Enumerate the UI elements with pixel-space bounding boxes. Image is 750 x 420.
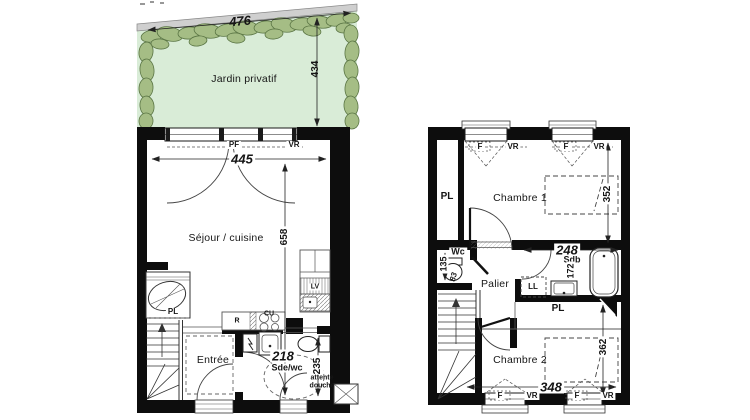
bath-depth-dim: 172	[567, 261, 576, 280]
window-label-f1: F	[476, 143, 485, 151]
dishwasher-label: LV	[309, 284, 321, 291]
bedroom1-depth-dim: 352	[603, 184, 613, 205]
stairs-upper	[438, 290, 480, 399]
closet-label-ground: PL	[166, 308, 180, 316]
bedroom2-width-dim: 348	[538, 381, 564, 394]
shower-note-2: douche	[310, 383, 335, 390]
washer-label: LL	[528, 283, 538, 291]
closet-bottom-label: PL	[552, 304, 565, 314]
bedroom2-depth-dim: 362	[599, 337, 609, 358]
garden-label: Jardin privatif	[211, 74, 276, 85]
wc-depth-dim: 135	[440, 254, 449, 273]
plan-drawing	[0, 0, 750, 420]
duct-triangle	[598, 297, 617, 317]
shutter-label-1: VR	[505, 143, 520, 151]
french-window-label: PF	[227, 141, 241, 149]
shutter-label-4: VR	[600, 392, 615, 400]
wc-label: Wc	[449, 248, 467, 257]
upper-fixtures	[444, 176, 618, 382]
cooktop-label: CU	[264, 311, 274, 318]
garden-depth-dim: 434	[311, 61, 321, 78]
bedroom2-label: Chambre 2	[493, 355, 547, 366]
shower-note-1: attente	[311, 375, 334, 382]
landing-label: Palier	[481, 279, 509, 290]
shutter-label-ground: VR	[286, 141, 301, 149]
shower-depth-dim: 235	[313, 356, 323, 377]
window-label-f4: F	[573, 392, 582, 400]
window-label-f2: F	[562, 143, 571, 151]
entry-label: Entrée	[197, 355, 229, 366]
garden-width-dim: 476	[229, 14, 252, 29]
living-depth-dim: 658	[280, 227, 290, 248]
bedroom1-label: Chambre 1	[493, 193, 547, 204]
shower-width-dim: 218	[270, 350, 296, 363]
shower-room-label: Sde/wc	[269, 364, 304, 373]
shutter-label-2: VR	[591, 143, 606, 151]
window-label-f3: F	[496, 392, 505, 400]
toilet-ground	[298, 337, 318, 352]
stairs-ground	[146, 320, 183, 400]
shutter-label-3: VR	[524, 392, 539, 400]
floor-plan: Jardin privatif 476 434 PF VR 445 Séjour…	[0, 0, 750, 420]
living-label: Séjour / cuisine	[189, 233, 264, 244]
closet-left-label: PL	[441, 192, 454, 202]
utility-box	[243, 334, 257, 352]
living-width-dim: 445	[229, 153, 255, 166]
fridge-label: R	[234, 318, 239, 325]
